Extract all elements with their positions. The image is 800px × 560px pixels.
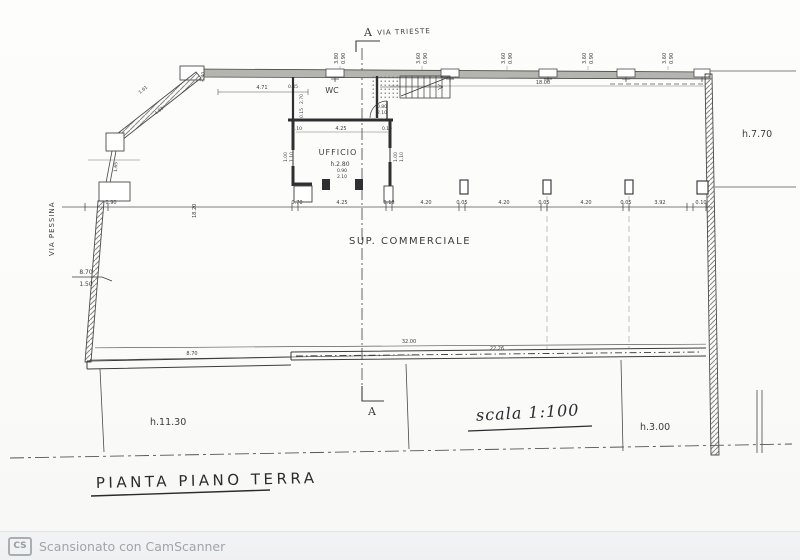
dim-chain: 3.92 <box>654 200 665 206</box>
street-label-left: VIA PESSINA <box>48 202 56 257</box>
floor-plan-drawing: VIA TRIESTE A 3.800.90 3.600.90 3.600.90… <box>0 0 800 532</box>
scale-note-text: scala 1:100 <box>476 400 580 424</box>
top-wall <box>180 66 796 82</box>
dim-window: 0.90 <box>341 53 347 64</box>
dim-window: 0.90 <box>423 53 429 64</box>
dim-chain: 0.10 <box>695 200 706 206</box>
dim-wc-v1: 2.70 <box>299 94 305 104</box>
room-label-wc: WC <box>325 86 339 95</box>
scale-note: scala 1:100 <box>468 400 592 431</box>
camscanner-watermark-text: Scansionato con CamScanner <box>39 539 225 554</box>
door-arc <box>370 101 387 119</box>
dim-chain: 0.05 <box>620 200 631 206</box>
dim-stair-door-h: 2.10 <box>377 110 387 116</box>
column-guide-lines <box>547 196 629 350</box>
dim-front-left: 8.70 <box>186 351 197 357</box>
section-bracket-top <box>356 41 380 52</box>
dim-total: 32.00 <box>402 339 416 345</box>
dim-inner: 22.26 <box>490 346 504 352</box>
window-dim-labels: 3.800.90 3.600.90 3.600.90 3.600.90 3.60… <box>334 53 675 70</box>
camscanner-footer: CS Scansionato con CamScanner <box>0 531 800 560</box>
dim-office-t2: 4.25 <box>335 126 346 132</box>
dim-frac-bottom: 1.50 <box>79 281 93 288</box>
dim-office-side: 1.10 <box>399 152 405 162</box>
dim-office-door-w: 0.90 <box>337 168 347 174</box>
ground-line <box>10 444 792 458</box>
dim-office-t1: 0.10 <box>292 126 302 132</box>
dim-chain: 4.25 <box>336 200 347 206</box>
dim-chain: 0.05 <box>456 200 467 206</box>
room-label-commercial: SUP. COMMERCIALE <box>349 236 471 247</box>
dim-top-left-span: 4.71 <box>256 85 267 91</box>
height-label-left-area: h.11.30 <box>150 417 186 428</box>
dim-chain: 0.90 <box>105 200 116 206</box>
section-marker-bottom: A <box>367 405 377 418</box>
dim-chain: 4.20 <box>420 200 431 206</box>
columns <box>460 180 708 194</box>
page-title: PIANTA PIANO TERRA <box>96 469 318 492</box>
dim-window: 3.80 <box>334 53 340 64</box>
dim-chain: 18.20 <box>192 204 198 218</box>
scanned-floor-plan-page: VIA TRIESTE A 3.800.90 3.600.90 3.600.90… <box>0 0 800 560</box>
room-label-office-height: h.2.80 <box>330 161 349 168</box>
dim-chain: 0.70 <box>291 200 302 206</box>
height-label-right-area: h.3.00 <box>640 422 670 433</box>
camscanner-logo-icon: CS <box>8 537 32 556</box>
dim-stair-door-w: 0.80 <box>377 104 387 110</box>
dim-window: 3.60 <box>582 53 588 64</box>
dim-office-side: 1.00 <box>393 152 399 162</box>
dim-wc-v2: 0.15 <box>299 108 305 118</box>
section-bracket-bottom <box>362 386 384 401</box>
height-label-right: h.7.70 <box>742 129 772 140</box>
dim-top-right-span: 18.00 <box>536 80 550 86</box>
dim-chain: 0.10 <box>383 200 394 206</box>
dim-window: 3.60 <box>416 53 422 64</box>
street-label-top: VIA TRIESTE <box>377 27 431 37</box>
dim-frac-top: 8.70 <box>79 269 93 276</box>
dim-left-v1: 1.65 <box>113 162 119 172</box>
dim-diag-1: 1.61 <box>137 84 149 95</box>
drawing-title: PIANTA PIANO TERRA <box>91 469 318 496</box>
dim-window: 3.60 <box>662 53 668 64</box>
dim-chain: 4.20 <box>580 200 591 206</box>
dim-office-side: 1.10 <box>289 152 295 162</box>
dim-chain: 4.20 <box>498 200 509 206</box>
storefront-wall <box>87 344 706 369</box>
left-wall <box>85 72 201 362</box>
dim-window: 0.90 <box>589 53 595 64</box>
dim-window: 0.90 <box>508 53 514 64</box>
dim-window: 3.60 <box>501 53 507 64</box>
dim-office-side: 1.00 <box>283 152 289 162</box>
sidewalk-dividers <box>100 360 762 453</box>
section-marker-top: A <box>363 26 373 39</box>
dim-office-door-h: 2.10 <box>337 174 347 180</box>
dim-window: 0.90 <box>669 53 675 64</box>
room-label-office: UFFICIO <box>319 148 358 157</box>
dim-office-t3: 0.10 <box>382 126 392 132</box>
dim-chain: 0.05 <box>538 200 549 206</box>
